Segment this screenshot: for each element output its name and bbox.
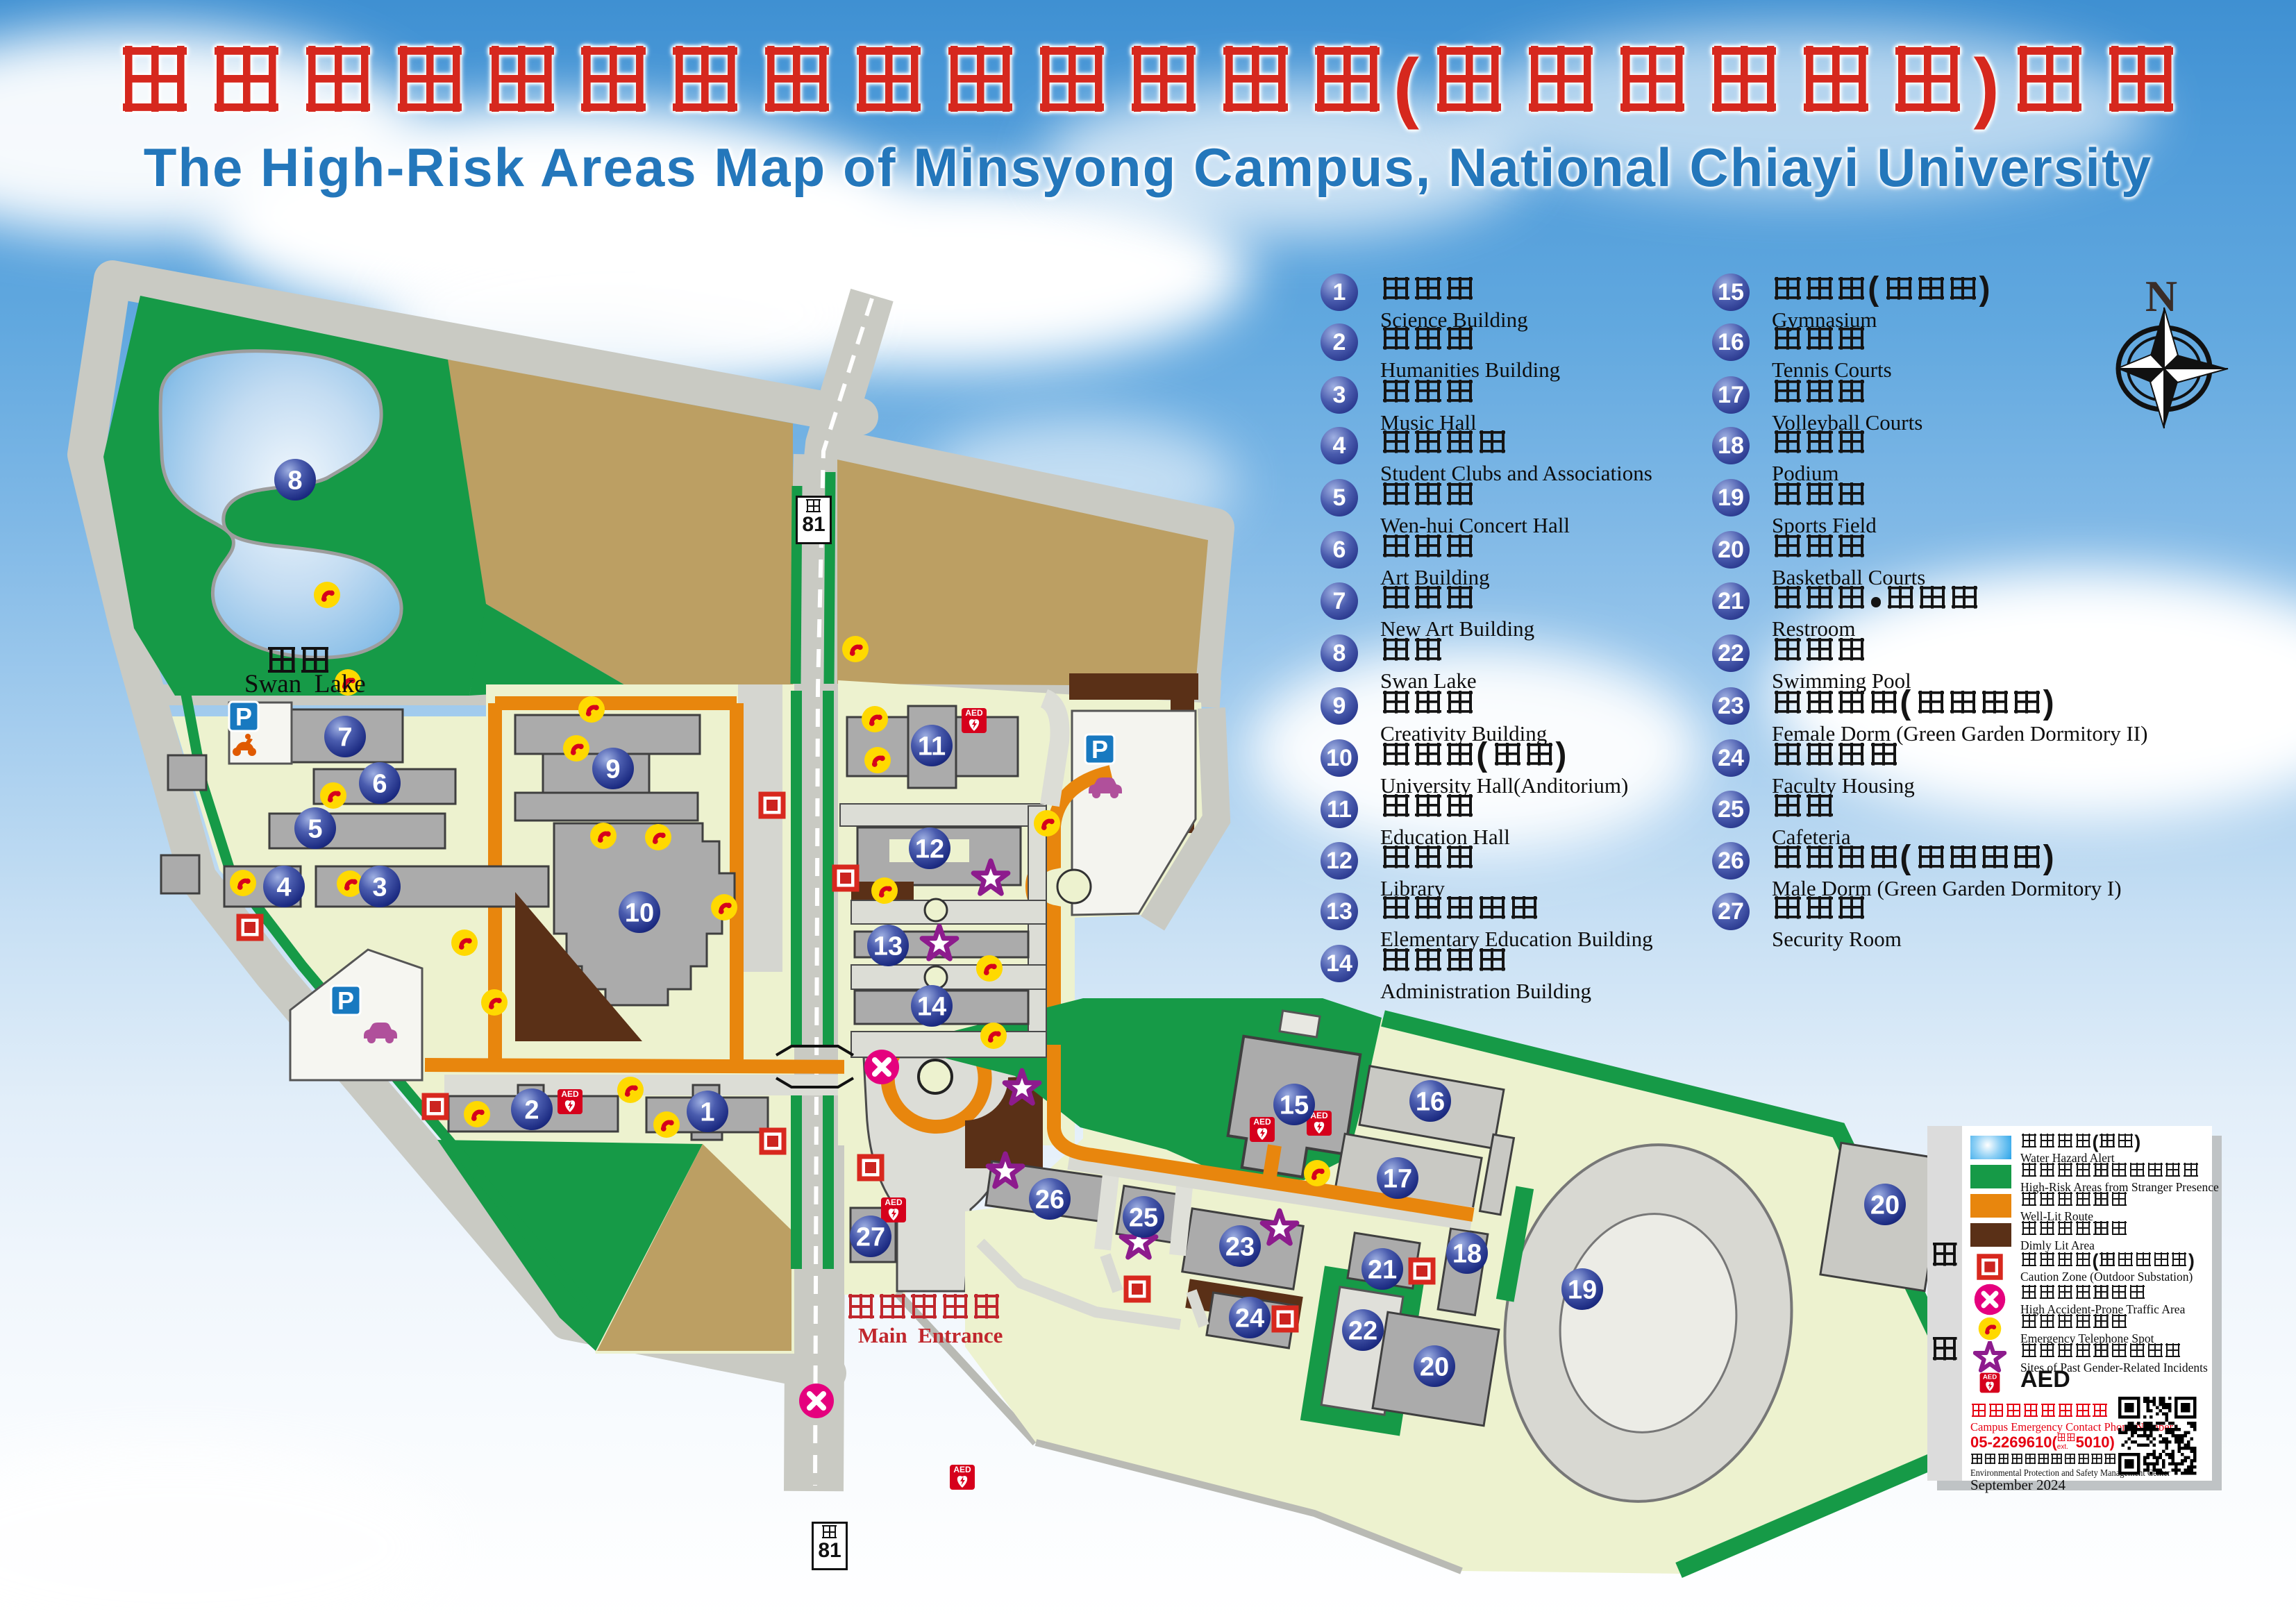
svg-text:4: 4 [276, 873, 291, 902]
svg-text:23: 23 [1225, 1232, 1255, 1261]
svg-text:17: 17 [1383, 1164, 1412, 1193]
svg-text:20: 20 [1420, 1352, 1449, 1381]
svg-text:13: 13 [873, 932, 903, 961]
svg-text:5: 5 [308, 814, 322, 843]
svg-text:6: 6 [372, 769, 387, 798]
svg-text:10: 10 [625, 898, 654, 927]
svg-text:11: 11 [918, 732, 946, 761]
svg-text:9: 9 [605, 755, 620, 784]
svg-text:8: 8 [287, 466, 302, 495]
svg-text:1: 1 [700, 1098, 714, 1127]
svg-text:15: 15 [1280, 1091, 1309, 1120]
svg-text:2: 2 [524, 1095, 539, 1125]
svg-text:12: 12 [915, 834, 944, 864]
svg-text:18: 18 [1452, 1239, 1482, 1268]
svg-text:24: 24 [1235, 1304, 1264, 1333]
svg-text:N: N [2145, 271, 2177, 321]
svg-text:22: 22 [1348, 1316, 1377, 1345]
svg-text:25: 25 [1129, 1203, 1158, 1232]
svg-text:7: 7 [337, 723, 352, 752]
svg-text:26: 26 [1035, 1185, 1064, 1214]
svg-text:19: 19 [1568, 1275, 1597, 1304]
svg-text:3: 3 [372, 873, 387, 902]
svg-text:20: 20 [1870, 1191, 1900, 1220]
svg-text:27: 27 [856, 1222, 885, 1252]
svg-text:21: 21 [1368, 1255, 1397, 1284]
svg-text:16: 16 [1416, 1087, 1445, 1116]
svg-text:14: 14 [917, 992, 946, 1021]
